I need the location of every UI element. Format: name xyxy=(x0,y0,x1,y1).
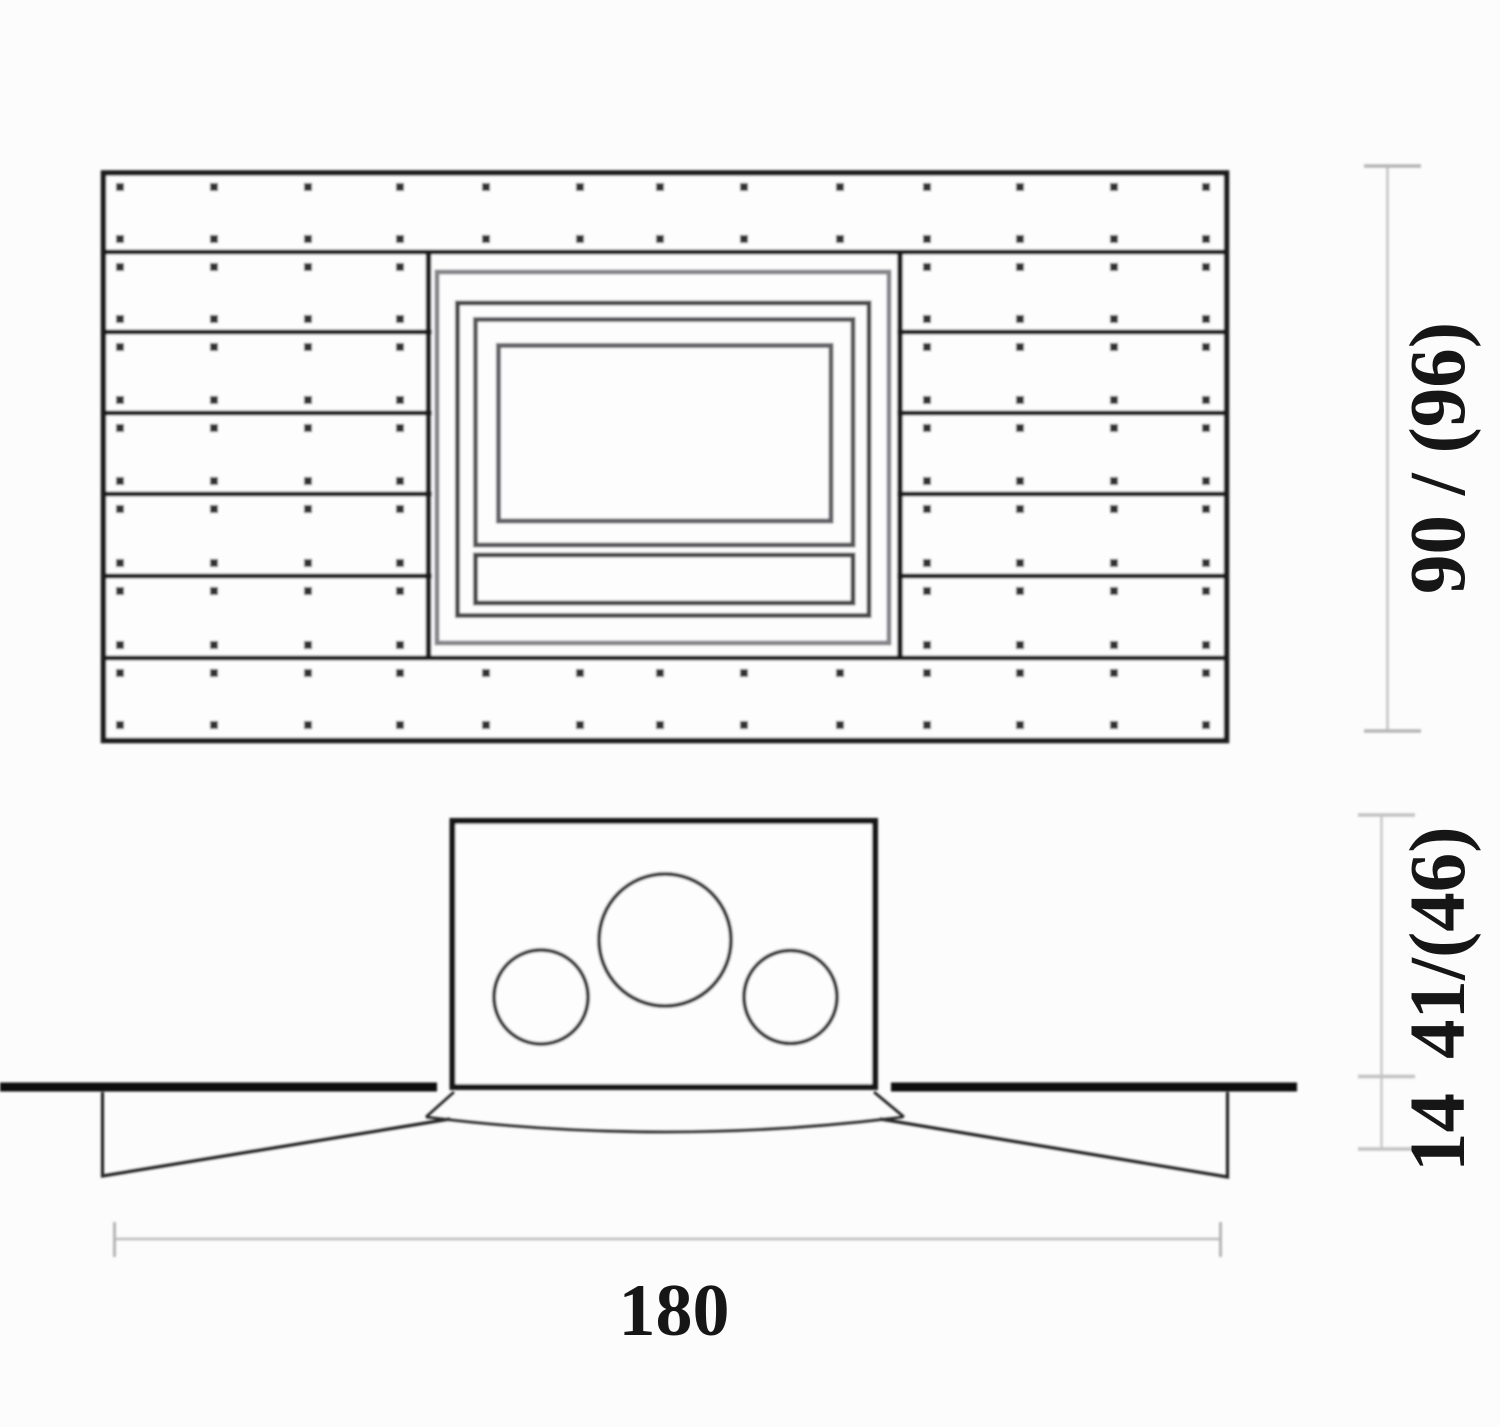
svg-text:90 / (96): 90 / (96) xyxy=(1395,322,1482,594)
svg-text:180: 180 xyxy=(619,1270,730,1352)
svg-text:41/(46): 41/(46) xyxy=(1395,826,1482,1059)
svg-text:14: 14 xyxy=(1395,1093,1482,1172)
